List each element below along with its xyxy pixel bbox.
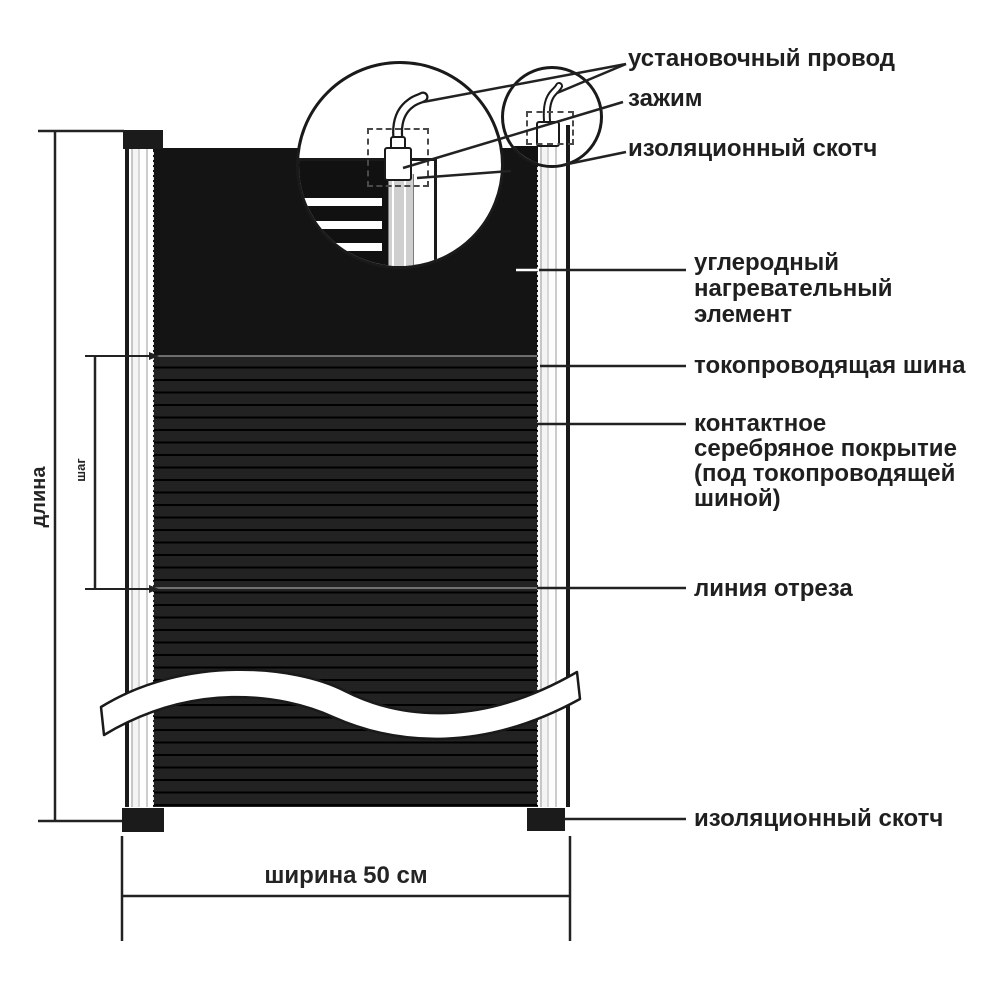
label-carbon-heating-element: углеродный нагревательный элемент <box>694 250 892 328</box>
label-line: шиной) <box>694 486 957 511</box>
dimension-text: ширина 50 см <box>264 862 427 889</box>
dimension-label-width: ширина 50 см <box>196 862 496 890</box>
dimension-label-step: шаг <box>73 438 87 502</box>
label-line: токопроводящая шина <box>694 353 965 379</box>
magnifier-circle-large <box>296 61 504 269</box>
label-line: нагревательный <box>694 276 892 302</box>
label-cut-line: линия отреза <box>694 576 853 602</box>
label-installation-wire: установочный провод <box>628 46 895 72</box>
heating-film-diagram: установочный провод зажим изоляционный с… <box>0 0 1000 1000</box>
label-conductive-bus: токопроводящая шина <box>694 353 965 379</box>
dimension-label-length: длина <box>28 435 48 559</box>
label-insulation-tape-top: изоляционный скотч <box>628 136 877 162</box>
dimension-text: длина <box>28 467 50 528</box>
label-insulation-tape-bottom: изоляционный скотч <box>694 806 943 832</box>
magnifier-circle-small <box>501 66 603 168</box>
label-text: изоляционный скотч <box>628 136 877 162</box>
label-line: контактное <box>694 411 957 436</box>
label-line: линия отреза <box>694 576 853 602</box>
label-clamp: зажим <box>628 86 702 112</box>
dimension-text: шаг <box>73 458 88 481</box>
small-circle-dashed-outline <box>526 111 574 145</box>
label-line: изоляционный скотч <box>694 806 943 832</box>
magnified-clamp-dashed-outline <box>367 128 429 187</box>
label-line: (под токопроводящей <box>694 461 957 486</box>
label-line: серебряное покрытие <box>694 436 957 461</box>
label-silver-contact-coating: контактное серебряное покрытие (под токо… <box>694 411 957 511</box>
label-line: элемент <box>694 302 892 328</box>
label-line: углеродный <box>694 250 892 276</box>
label-text: зажим <box>628 86 702 112</box>
label-text: установочный провод <box>628 46 895 72</box>
